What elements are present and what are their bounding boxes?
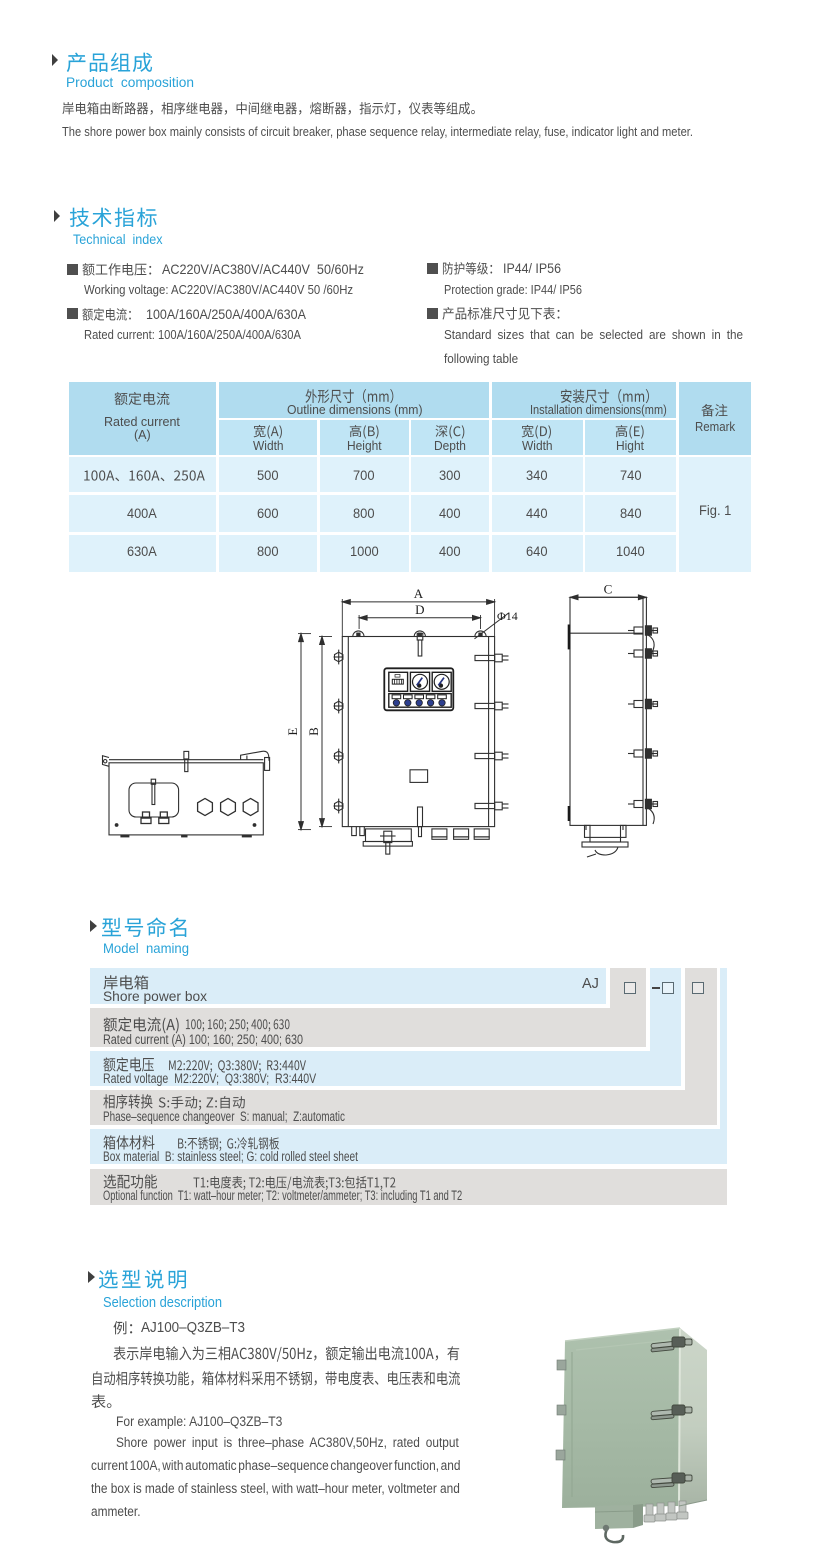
svg-text:D: D xyxy=(415,602,424,617)
svg-text:E: E xyxy=(285,728,300,736)
svg-text:C: C xyxy=(604,585,613,596)
svg-text:Φ14: Φ14 xyxy=(497,609,518,623)
svg-text:A: A xyxy=(414,586,424,601)
svg-text:B: B xyxy=(306,727,321,736)
